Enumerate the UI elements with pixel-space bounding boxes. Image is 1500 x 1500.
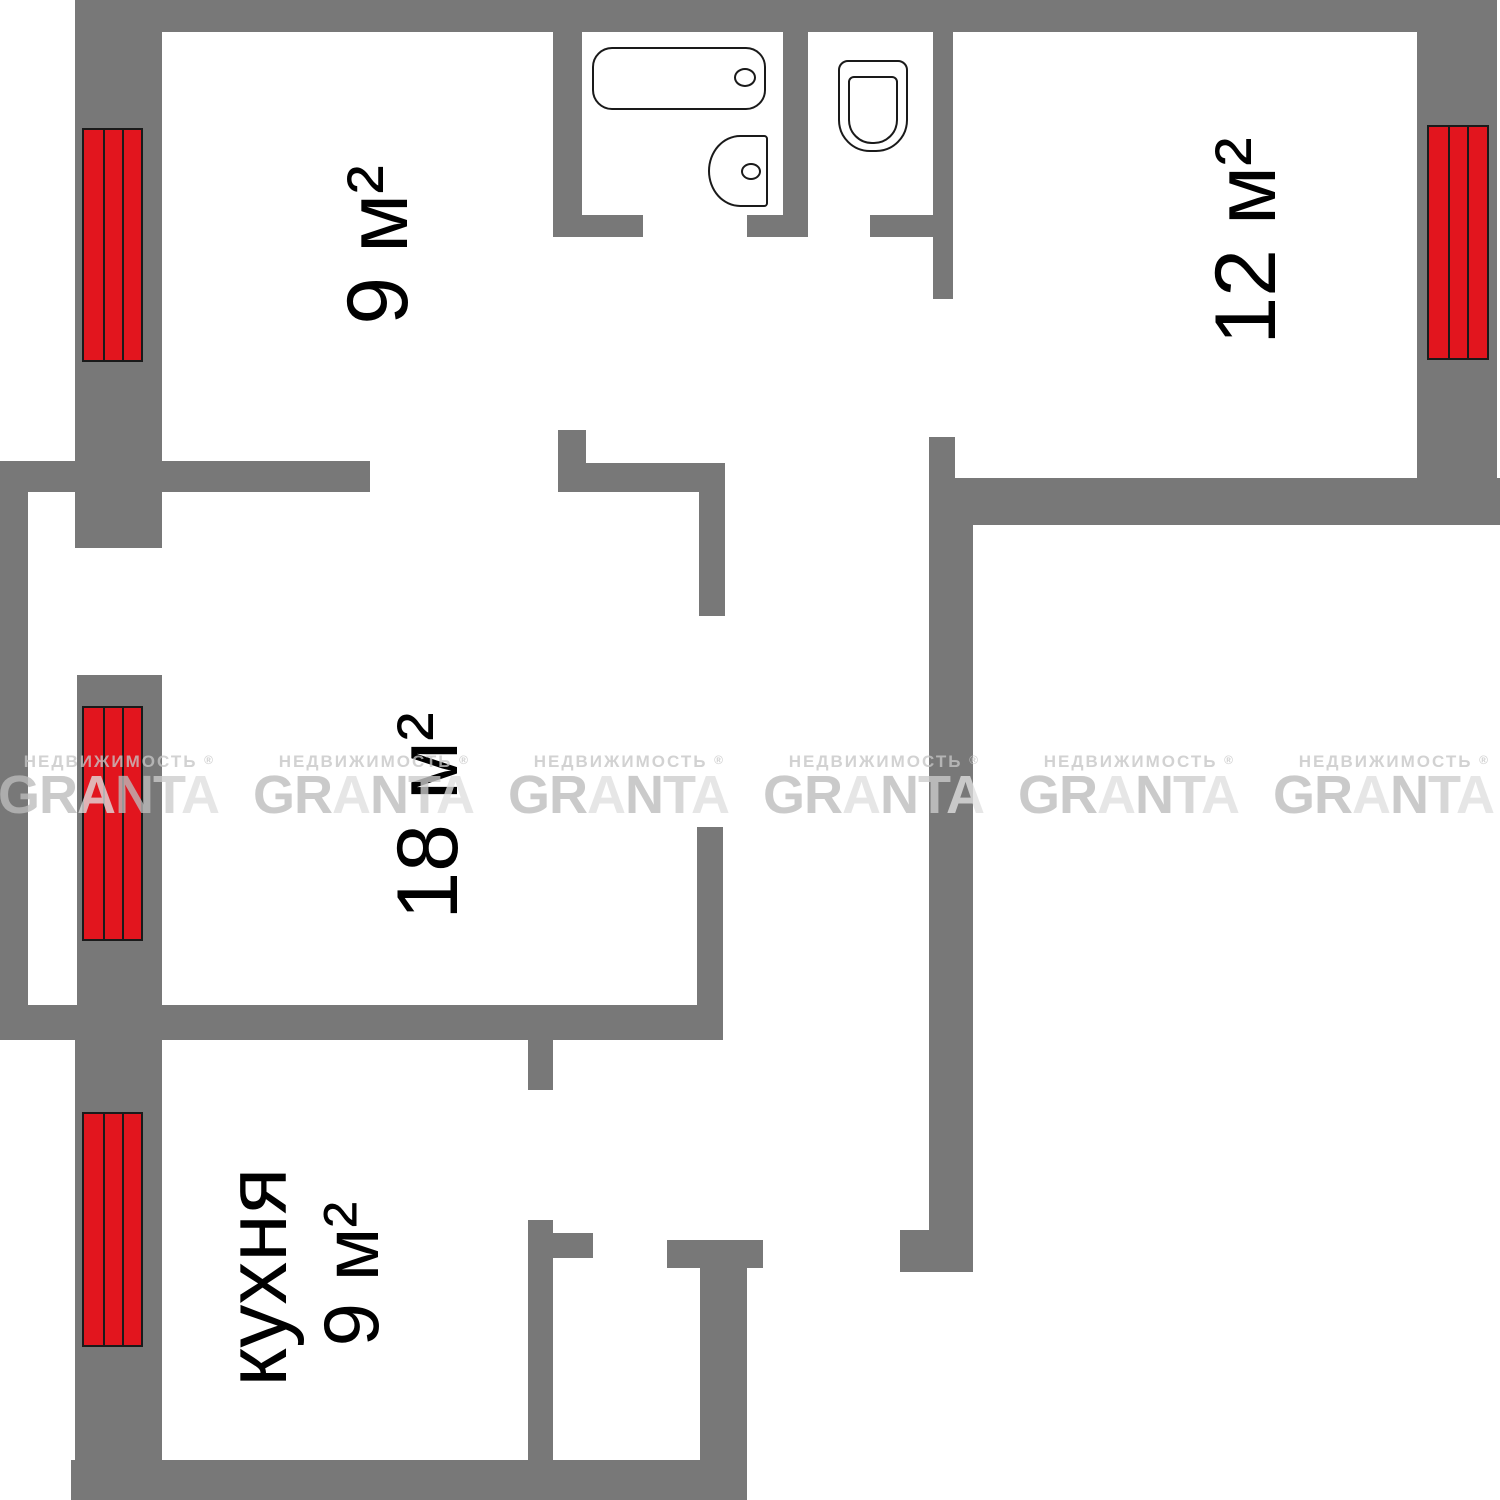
wall-bath-bottom-left: [582, 215, 643, 237]
wall-top-outer: [75, 0, 1417, 32]
wall-room1-right: [553, 32, 582, 237]
wall-hall-foot: [900, 1230, 929, 1272]
watermark-tagline: НЕДВИЖИМОСТЬ ®: [1018, 753, 1233, 770]
radiator-kitchen: [82, 1112, 143, 1347]
bathtub-icon: [592, 47, 766, 110]
wall-left-outer-strip: [0, 461, 28, 1040]
wall-kitchen-door-jamb: [553, 1233, 593, 1258]
wall-wc-bottom: [870, 215, 933, 237]
wall-hall-main: [929, 525, 973, 1272]
wall-hall-top-right: [558, 463, 725, 492]
bathtub-drain-icon: [734, 68, 756, 87]
label-kitchen-name: кухня: [214, 1168, 300, 1387]
wall-bottom-outer: [71, 1460, 747, 1500]
wall-bath-bottom-right: [747, 215, 783, 237]
watermark-logo: НЕДВИЖИМОСТЬ ®GRANTA: [1018, 753, 1233, 825]
radiator-room1: [82, 128, 143, 362]
registered-mark-icon: ®: [204, 753, 213, 767]
radiator-room2: [1427, 125, 1489, 360]
watermark-brand: GRANTA: [1273, 771, 1488, 821]
watermark-logo: НЕДВИЖИМОСТЬ ®GRANTA: [508, 753, 723, 825]
wall-left-mid-stub: [75, 492, 162, 548]
sink-icon: [708, 135, 768, 207]
sink-drain-icon: [741, 163, 761, 180]
wall-entry-top: [667, 1240, 763, 1268]
watermark-tagline: НЕДВИЖИМОСТЬ ®: [508, 753, 723, 770]
wall-hall-upper-jamb: [929, 437, 955, 478]
radiator-living: [82, 706, 143, 941]
wall-kitchen-right: [528, 1220, 553, 1460]
wall-living-bottom: [0, 1005, 723, 1040]
registered-mark-icon: ®: [1479, 753, 1488, 767]
wall-hall-top-left: [0, 461, 370, 492]
label-room-top-right: 12 м²: [1203, 137, 1289, 344]
wall-wc-right: [933, 32, 953, 299]
toilet-bowl-icon: [848, 76, 898, 144]
watermark-brand: GRANTA: [1018, 771, 1233, 821]
watermark-tagline: НЕДВИЖИМОСТЬ ®: [1273, 753, 1488, 770]
label-room-living: 18 м²: [385, 712, 471, 919]
wall-bath-wc-divider: [783, 32, 808, 237]
watermark-brand: GRANTA: [508, 771, 723, 821]
label-kitchen-area: 9 м²: [312, 1202, 390, 1347]
wall-kitchen-right-stub: [528, 1040, 553, 1090]
registered-mark-icon: ®: [714, 753, 723, 767]
label-room-top-left: 9 м²: [335, 165, 421, 325]
wall-living-right-upper: [699, 492, 725, 616]
wall-room2-bottom: [929, 478, 1500, 525]
registered-mark-icon: ®: [1224, 753, 1233, 767]
floor-plan: 9 м² 12 м² 18 м² кухня 9 м² НЕДВИЖИМОСТЬ…: [0, 0, 1500, 1500]
watermark-logo: НЕДВИЖИМОСТЬ ®GRANTA: [1273, 753, 1488, 825]
